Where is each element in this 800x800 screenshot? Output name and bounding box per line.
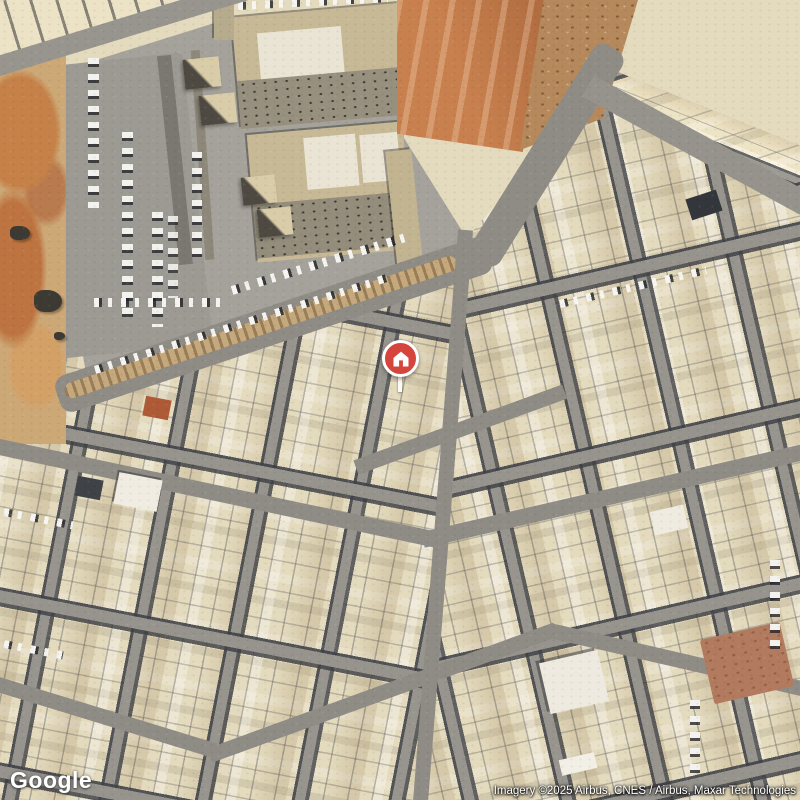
parked-cars-row — [122, 132, 133, 322]
dirt-sports-field — [397, 0, 545, 152]
parked-trucks-row — [168, 216, 178, 298]
parked-cars-row — [88, 58, 99, 208]
tree — [34, 290, 62, 312]
satellite-map-canvas[interactable]: Google Imagery ©2025 Airbus, CNES / Airb… — [0, 0, 800, 800]
imagery-attribution: Imagery ©2025 Airbus, CNES / Airbus, Max… — [494, 785, 796, 797]
pyramid-shade-roof — [199, 92, 238, 126]
parked-cars-row — [770, 560, 780, 650]
school-building-north — [231, 3, 408, 129]
parked-cars-row — [152, 212, 163, 327]
google-logo[interactable]: Google — [10, 767, 92, 794]
pyramid-shade-roof — [183, 56, 222, 90]
pyramid-shade-roof — [241, 174, 278, 205]
pyramid-shade-roof — [257, 206, 294, 237]
parked-cars-row — [690, 700, 700, 780]
shed — [10, 226, 30, 240]
home-icon — [391, 349, 411, 369]
marker-pin — [382, 340, 419, 377]
parked-cars-row — [94, 298, 226, 307]
shrub — [54, 332, 65, 340]
courtyard — [303, 134, 359, 190]
courtyard — [257, 26, 345, 79]
parked-cars-row — [192, 152, 202, 260]
